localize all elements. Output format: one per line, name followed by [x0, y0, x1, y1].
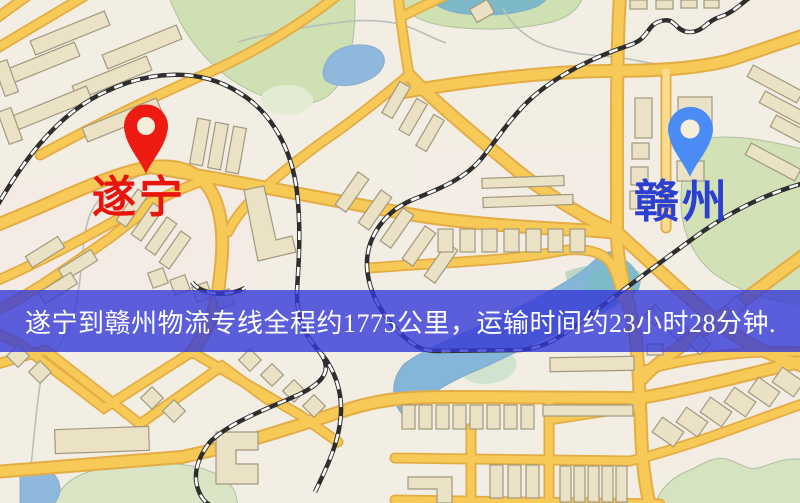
route-info-banner: 遂宁到赣州物流专线全程约1775公里，运输时间约23小时28分钟.	[0, 290, 800, 352]
destination-city-label: 赣州	[634, 180, 730, 225]
route-map-image: 遂宁 赣州 遂宁到赣州物流专线全程约1775公里，运输时间约23小时28分钟.	[0, 0, 800, 503]
map-canvas	[0, 0, 800, 503]
origin-city-label: 遂宁	[92, 176, 186, 220]
park-area	[261, 85, 313, 115]
route-info-text: 遂宁到赣州物流专线全程约1775公里，运输时间约23小时28分钟.	[0, 303, 776, 340]
